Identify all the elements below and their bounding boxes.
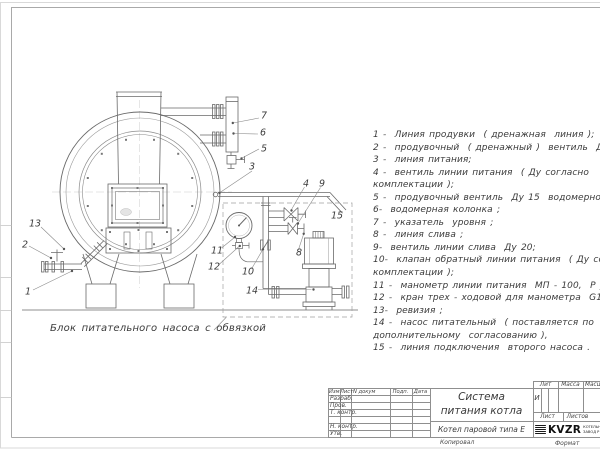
callout-10: 10 — [242, 267, 254, 278]
callout-3: 3 — [249, 162, 255, 173]
parts-list-line: 10- клапан обратный линии питания ( Ду с… — [373, 254, 600, 267]
parts-list-line: 8 - линия слива ; — [373, 229, 600, 242]
kvzr-logo: KVZR КОТЕЛЬН ЗАВОД Р — [535, 423, 600, 436]
pressure-gauge — [226, 213, 263, 262]
kvzr-logo-text: KVZR — [548, 424, 581, 436]
callout-9: 9 — [319, 179, 325, 190]
parts-list-line: дополнительному согласованию ), — [373, 330, 600, 343]
parts-list-line: 14 - насос питательный ( поставляется по — [373, 317, 600, 330]
callout-14: 14 — [246, 286, 258, 297]
stamp-row-utv: Утв. — [330, 431, 342, 437]
parts-list-line: 15 - линия подключения второго насоса . — [373, 342, 600, 355]
stamp-listov-label: Листов — [563, 414, 593, 420]
kvzr-logo-subtext-line1: КОТЕЛЬН — [583, 425, 600, 429]
drawing-caption: Блок питательного насоса с обвязкой — [50, 323, 266, 334]
stamp-massa-label: Масса — [558, 382, 583, 388]
callout-15: 15 — [331, 211, 343, 222]
feed-pump — [303, 232, 350, 311]
callout-4: 4 — [303, 179, 309, 190]
parts-list-line: комплектации ); — [373, 267, 600, 280]
doc-title-line1: Система — [430, 391, 533, 405]
stamp-row-tkontr: Т. контр. — [330, 410, 357, 416]
parts-list-line: 2 - продувочный ( дренажный ) вентиль Ду… — [373, 142, 600, 155]
leader-lines — [29, 118, 321, 291]
doc-title-line2: питания котла — [430, 405, 533, 419]
stamp-row-razrab: Разраб. — [330, 396, 353, 402]
parts-list-line: 11 - манометр линии питания МП - 100, Р … — [373, 280, 600, 293]
product-name: Котел паровой типа Е — [430, 425, 533, 434]
water-level-column — [161, 97, 245, 169]
stamp-col-ndoc: N докум — [353, 389, 375, 395]
stamp-row-nkontr: Н. контр. — [330, 424, 358, 430]
parts-list-line: комплектации ); — [373, 179, 600, 192]
stamp-col-data: Дата — [412, 389, 430, 395]
callout-1: 1 — [25, 287, 31, 298]
format-label: Формат — [555, 440, 579, 447]
stamp-col-podp: Подп. — [390, 389, 412, 395]
callout-12: 12 — [208, 262, 220, 273]
callout-6: 6 — [260, 128, 266, 139]
stamp-lit-label: Лит — [533, 382, 558, 388]
callout-13: 13 — [29, 219, 41, 230]
stamp-row-prov: Пров. — [330, 403, 347, 409]
parts-list-line: 9- вентиль линии слива Ду 20; — [373, 242, 600, 255]
parts-list-line: 13- ревизия ; — [373, 305, 600, 318]
boiler-door — [108, 184, 167, 227]
stamp-lit-value: И — [533, 394, 541, 402]
doc-title: Система питания котла — [430, 391, 533, 418]
parts-list-line: 7 - указатель уровня ; — [373, 217, 600, 230]
kopiroval-label: Копировал — [440, 439, 474, 446]
parts-list-line: 3 - линия питания; — [373, 154, 600, 167]
callout-11: 11 — [211, 246, 223, 257]
callout-5: 5 — [261, 144, 267, 155]
parts-list-line: 6- водомерная колонка ; — [373, 204, 600, 217]
stamp-col-izm: Изм — [329, 389, 340, 395]
kvzr-logo-subtext: КОТЕЛЬН ЗАВОД Р — [583, 425, 600, 434]
parts-list-line: 1 - Линия продувки ( дренажная линия ); — [373, 129, 600, 142]
kvzr-logo-subtext-line2: ЗАВОД Р — [583, 430, 600, 434]
stamp-col-list: Лист — [340, 389, 353, 395]
parts-list-line: 4 - вентиль линии питания ( Ду согласно — [373, 167, 600, 180]
callout-2: 2 — [22, 240, 28, 251]
chimney — [116, 92, 162, 184]
parts-list-line: 12 - кран трех - ходовой для манометра G… — [373, 292, 600, 305]
kvzr-logo-icon — [535, 425, 546, 434]
callout-7: 7 — [261, 111, 267, 122]
stamp-list-label: Лист — [533, 414, 562, 420]
blowdown-valve-assembly — [42, 241, 108, 273]
parts-list-line: 5 - продувочный вентиль Ду 15 водомерной… — [373, 192, 600, 205]
callout-8: 8 — [296, 248, 302, 259]
parts-list: 1 - Линия продувки ( дренажная линия ); … — [373, 129, 600, 357]
stamp-masshtab-label: Масштаб — [585, 382, 600, 388]
pump-block-boundary — [214, 203, 352, 330]
